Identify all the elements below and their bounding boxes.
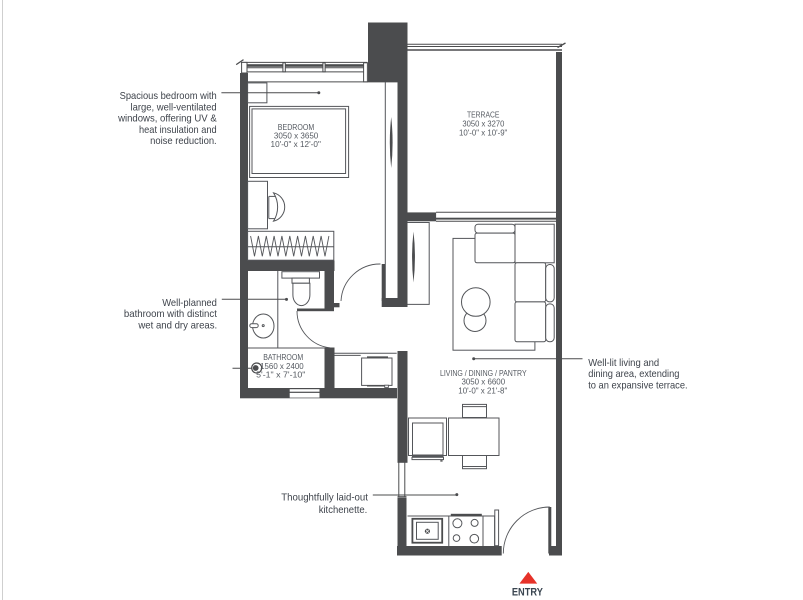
svg-text:noise reduction.: noise reduction.	[150, 136, 217, 147]
svg-text:dining area, extending: dining area, extending	[588, 369, 679, 380]
svg-text:Spacious bedroom with: Spacious bedroom with	[120, 91, 217, 102]
svg-text:1560 x 2400: 1560 x 2400	[260, 362, 304, 371]
svg-text:5'-1" x 7'-10": 5'-1" x 7'-10"	[256, 371, 305, 380]
svg-text:to an expansive terrace.: to an expansive terrace.	[588, 381, 687, 392]
svg-text:3050 x 3270: 3050 x 3270	[462, 119, 505, 128]
svg-text:3050 x 6600: 3050 x 6600	[461, 378, 505, 387]
svg-text:10'-0" x 21'-8": 10'-0" x 21'-8"	[458, 387, 507, 396]
svg-text:heat insulation and: heat insulation and	[139, 125, 217, 136]
svg-text:10'-0" x 10'-9": 10'-0" x 10'-9"	[459, 129, 507, 138]
svg-text:ENTRY: ENTRY	[512, 586, 543, 598]
svg-text:10'-0" x 12'-0": 10'-0" x 12'-0"	[271, 140, 321, 149]
svg-text:BATHROOM: BATHROOM	[263, 353, 303, 362]
svg-text:Well-lit living and: Well-lit living and	[588, 358, 659, 369]
svg-text:kitchenette.: kitchenette.	[319, 505, 368, 516]
svg-text:windows, offering UV &: windows, offering UV &	[117, 114, 217, 125]
svg-text:wet and dry areas.: wet and dry areas.	[137, 321, 217, 332]
svg-text:large, well-ventilated: large, well-ventilated	[131, 102, 218, 113]
svg-text:LIVING / DINING / PANTRY: LIVING / DINING / PANTRY	[440, 369, 527, 378]
svg-text:Thoughtfully laid-out: Thoughtfully laid-out	[281, 492, 368, 503]
svg-text:bathroom with distinct: bathroom with distinct	[124, 309, 217, 320]
svg-text:Well-planned: Well-planned	[162, 298, 217, 309]
